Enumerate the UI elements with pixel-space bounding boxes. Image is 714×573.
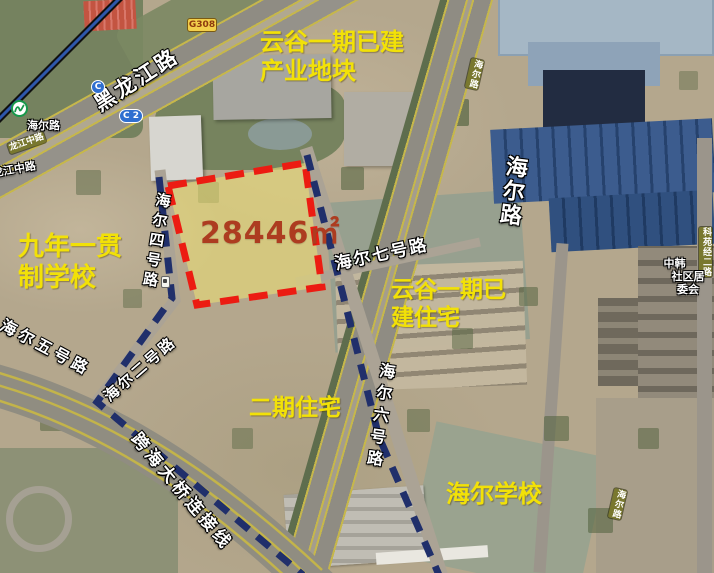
map-region-pond (248, 118, 312, 150)
label-haier-school: 海尔学校 (446, 474, 542, 509)
parcel-area-label: 28446㎡ (200, 208, 340, 252)
label-industrial-block: 云谷一期已建 产业地块 (260, 28, 404, 86)
satellite-map: 云谷一期已建 产业地块 九年一贯 制学校 云谷一期已 建住宅 二期住宅 海尔学校… (0, 0, 714, 573)
metro-station-icon (11, 100, 28, 117)
gas-pump-glyph (163, 279, 167, 283)
marker-c2: C 2 (119, 109, 143, 123)
marker-c: C (91, 80, 105, 94)
road-label-haier-no5: 海尔五号路 (0, 312, 96, 380)
label-phase1-residential: 云谷一期已 建住宅 (391, 276, 506, 332)
community-committee-text: 社区居委会 (668, 270, 708, 296)
road-label-haier-no2: 海尔二号路 (99, 331, 181, 406)
community-committee-label: 中韩 社区居委会 (628, 257, 708, 270)
gas-station-icon (161, 276, 170, 288)
map-region-solar-array-2 (549, 190, 714, 253)
map-region-white-building (149, 115, 203, 181)
label-phase2-residential: 二期住宅 (249, 388, 341, 422)
badge-g308: G308 (187, 18, 217, 32)
map-region-dark-roof (543, 70, 645, 130)
label-nine-year-school: 九年一贯 制学校 (18, 232, 122, 294)
map-region-red-roof-building (83, 0, 136, 31)
zhonghan-text: 中韩 (664, 257, 686, 270)
keyuan-road-band (697, 138, 712, 573)
metro-station-label: 海尔路 (27, 117, 60, 133)
map-trees-scatter (0, 0, 1, 1)
map-region-ring-road (6, 486, 72, 552)
